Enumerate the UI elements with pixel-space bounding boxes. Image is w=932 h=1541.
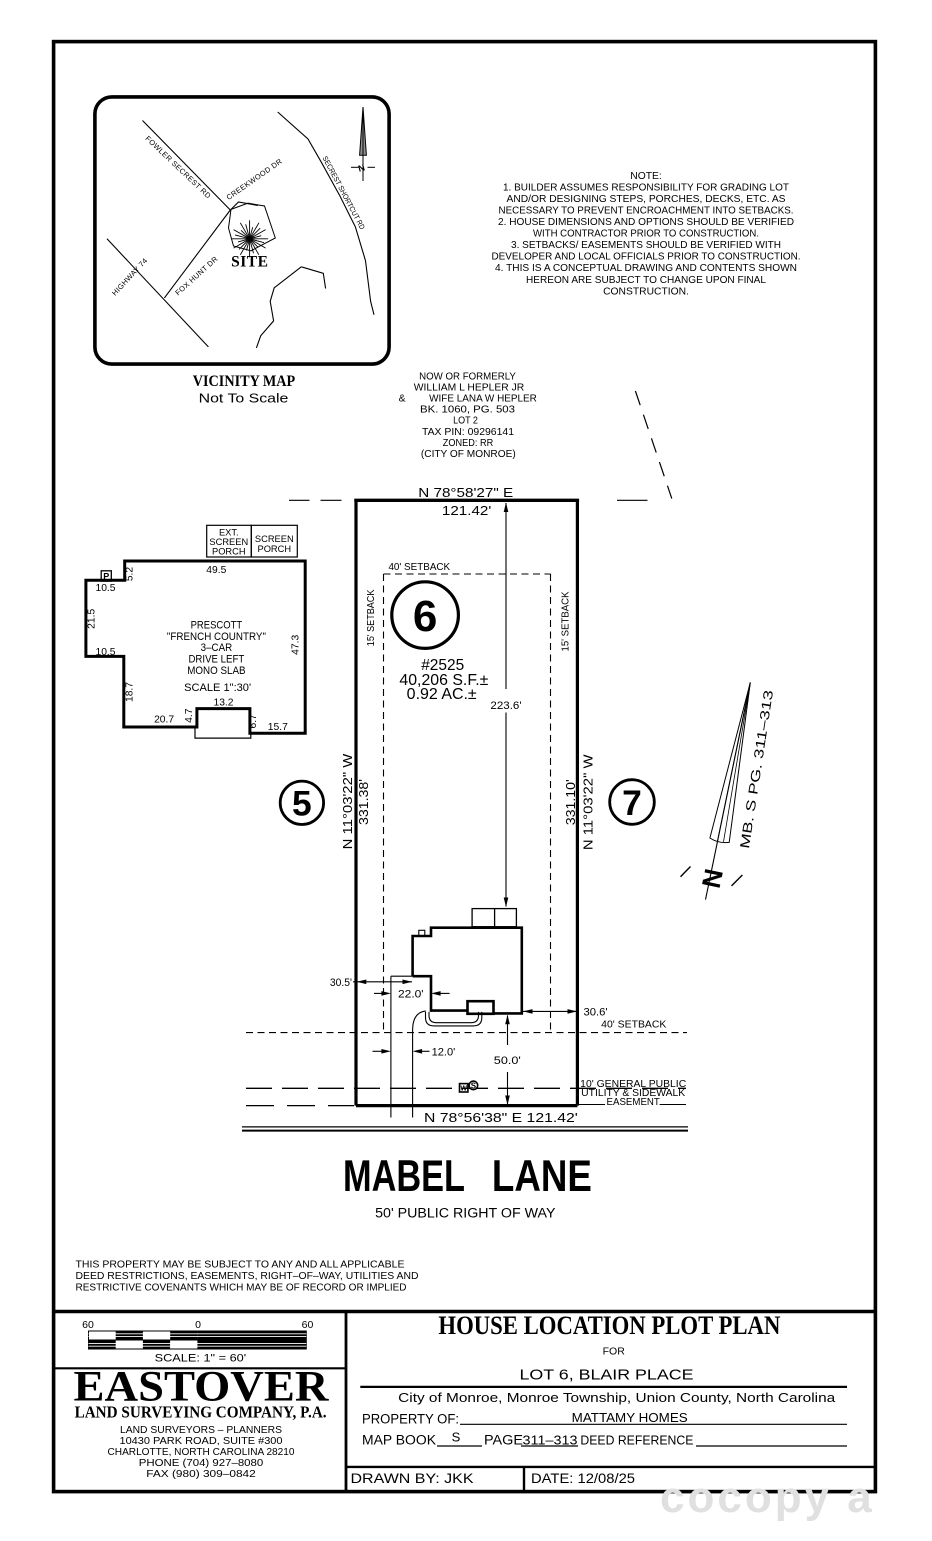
svg-text:311–313: 311–313 (523, 1433, 578, 1448)
svg-text:W: W (460, 1085, 467, 1092)
svg-text:S: S (471, 1082, 477, 1091)
svg-text:13.2: 13.2 (213, 697, 233, 708)
svg-text:30.5': 30.5' (330, 977, 352, 989)
svg-text:TAX PIN: 09296141: TAX PIN: 09296141 (422, 427, 514, 438)
svg-text:40' SETBACK: 40' SETBACK (601, 1020, 666, 1031)
svg-text:331.10': 331.10' (564, 779, 578, 825)
svg-text:SCREEN: SCREEN (209, 537, 248, 547)
svg-text:12.0': 12.0' (432, 1047, 456, 1059)
svg-text:10.5: 10.5 (95, 647, 115, 658)
svg-text:5: 5 (292, 784, 312, 824)
svg-text:N 11°03'22" W: N 11°03'22" W (341, 753, 355, 849)
svg-text:3. SETBACKS/ EASEMENTS SHOULD: 3. SETBACKS/ EASEMENTS SHOULD BE VERIFIE… (511, 240, 781, 251)
svg-text:FAX (980) 309–0842: FAX (980) 309–0842 (146, 1469, 256, 1480)
svg-text:15' SETBACK: 15' SETBACK (561, 591, 572, 651)
svg-text:BK. 1060, PG. 503: BK. 1060, PG. 503 (420, 405, 515, 416)
svg-text:EASEMENT: EASEMENT (607, 1097, 660, 1108)
svg-text:4.7: 4.7 (184, 708, 195, 723)
svg-text:(CITY OF MONROE): (CITY OF MONROE) (421, 449, 516, 460)
svg-text:PORCH: PORCH (212, 547, 246, 557)
svg-text:N 78°58'27" E: N 78°58'27" E (418, 485, 513, 500)
svg-text:MATTAMY HOMES: MATTAMY HOMES (572, 1410, 688, 1425)
svg-text:EXT.: EXT. (219, 527, 239, 537)
svg-text:331.38': 331.38' (357, 779, 371, 825)
svg-text:"FRENCH COUNTRY": "FRENCH COUNTRY" (167, 631, 266, 643)
svg-text:PROPERTY OF:: PROPERTY OF: (362, 1412, 459, 1427)
svg-text:60: 60 (82, 1319, 94, 1331)
svg-text:40' SETBACK: 40' SETBACK (388, 562, 450, 573)
svg-text:22.0': 22.0' (398, 988, 424, 1000)
svg-text:0.92 AC.±: 0.92 AC.± (407, 686, 477, 703)
svg-text:LAND SURVEYING COMPANY, P.A.: LAND SURVEYING COMPANY, P.A. (75, 1403, 327, 1422)
svg-text:10.5: 10.5 (95, 583, 115, 594)
svg-text:AND/OR DESIGNING STEPS, PORCHE: AND/OR DESIGNING STEPS, PORCHES, DECKS, … (507, 194, 786, 205)
svg-text:MAP BOOK: MAP BOOK (362, 1433, 436, 1448)
svg-text:WILLIAM L HEPLER JR: WILLIAM L HEPLER JR (414, 382, 525, 393)
svg-text:SCALE 1":30': SCALE 1":30' (184, 682, 251, 694)
svg-text:DEED REFERENCE: DEED REFERENCE (580, 1433, 693, 1448)
svg-text:THIS PROPERTY MAY BE SUBJECT T: THIS PROPERTY MAY BE SUBJECT TO ANY AND … (76, 1259, 405, 1270)
svg-text:N 78°56'38" E 121.42': N 78°56'38" E 121.42' (424, 1110, 578, 1125)
svg-text:CONSTRUCTION.: CONSTRUCTION. (603, 286, 689, 297)
svg-text:cocopy a: cocopy a (660, 1473, 875, 1522)
svg-text:SCREEN: SCREEN (255, 534, 294, 544)
svg-text:1. BUILDER ASSUMES RESPONSIBIL: 1. BUILDER ASSUMES RESPONSIBILITY FOR GR… (503, 182, 790, 193)
svg-text:PHONE (704) 927–8080: PHONE (704) 927–8080 (139, 1458, 264, 1469)
svg-text:7: 7 (622, 783, 642, 823)
svg-text:LAND SURVEYORS – PLANNERS: LAND SURVEYORS – PLANNERS (120, 1425, 282, 1436)
svg-text:NECESSARY TO PREVENT ENCROACHM: NECESSARY TO PREVENT ENCROACHMENT INTO S… (499, 205, 794, 216)
svg-text:47.3: 47.3 (290, 635, 301, 655)
svg-text:WIFE LANA W HEPLER: WIFE LANA W HEPLER (429, 394, 537, 405)
svg-text:N 11°03'22" W: N 11°03'22" W (581, 754, 595, 850)
svg-text:WITH CONTRACTOR PRIOR TO CONST: WITH CONTRACTOR PRIOR TO CONSTRUCTION. (533, 229, 759, 240)
svg-text:HOUSE LOCATION PLOT PLAN: HOUSE LOCATION PLOT PLAN (438, 1311, 780, 1340)
svg-text:50.0': 50.0' (494, 1055, 521, 1067)
svg-text:FOR: FOR (603, 1346, 626, 1358)
svg-text:5.2: 5.2 (125, 567, 136, 582)
svg-text:MABEL: MABEL (343, 1152, 465, 1201)
svg-text:49.5: 49.5 (206, 565, 226, 576)
svg-text:CHARLOTTE, NORTH CAROLINA 2821: CHARLOTTE, NORTH CAROLINA 28210 (108, 1447, 295, 1458)
svg-text:2. HOUSE DIMENSIONS AND OPTION: 2. HOUSE DIMENSIONS AND OPTIONS SHOULD B… (498, 217, 794, 228)
svg-text:ZONED: RR: ZONED: RR (443, 438, 493, 449)
svg-text:LOT 6, BLAIR PLACE: LOT 6, BLAIR PLACE (520, 1367, 694, 1384)
svg-text:15' SETBACK: 15' SETBACK (366, 589, 377, 646)
svg-text:15.7: 15.7 (268, 722, 288, 733)
svg-text:21.5: 21.5 (86, 609, 97, 629)
svg-text:PAGE: PAGE (484, 1433, 523, 1448)
svg-text:121.42': 121.42' (442, 503, 491, 518)
svg-text:MONO SLAB: MONO SLAB (187, 665, 245, 677)
svg-text:HEREON ARE SUBJECT TO CHANGE U: HEREON ARE SUBJECT TO CHANGE UPON FINAL (526, 275, 766, 286)
svg-text:6.7: 6.7 (248, 714, 259, 729)
svg-text:LANE: LANE (492, 1152, 592, 1201)
svg-text:City of Monroe, Monroe Townshi: City of Monroe, Monroe Township, Union C… (398, 1390, 836, 1405)
svg-text:20.7: 20.7 (154, 715, 174, 726)
svg-text:RESTRICTIVE COVENANTS WHICH MA: RESTRICTIVE COVENANTS WHICH MAY BE OF RE… (76, 1283, 407, 1294)
svg-text:PRESCOTT: PRESCOTT (191, 620, 243, 632)
svg-text:DEVELOPER AND LOCAL OFFICIALS: DEVELOPER AND LOCAL OFFICIALS PRIOR TO C… (492, 252, 801, 263)
svg-text:DRAWN BY: JKK: DRAWN BY: JKK (351, 1470, 475, 1486)
svg-text:0: 0 (195, 1319, 201, 1331)
svg-text:VICINITY MAP: VICINITY MAP (193, 373, 296, 390)
svg-text:Not To Scale: Not To Scale (199, 391, 289, 406)
svg-text:3–CAR: 3–CAR (201, 642, 233, 654)
svg-text:&: & (399, 394, 406, 405)
svg-text:S: S (452, 1430, 461, 1445)
svg-text:P: P (103, 572, 109, 582)
svg-text:LOT 2: LOT 2 (453, 416, 478, 427)
svg-text:50' PUBLIC RIGHT OF WAY: 50' PUBLIC RIGHT OF WAY (375, 1206, 556, 1222)
svg-text:PORCH: PORCH (258, 544, 292, 554)
svg-text:30.6': 30.6' (584, 1006, 608, 1018)
svg-text:SITE: SITE (231, 254, 268, 271)
svg-text:18.7: 18.7 (125, 682, 136, 702)
svg-text:223.6': 223.6' (490, 700, 521, 712)
svg-text:4. THIS IS A CONCEPTUAL DRAWIN: 4. THIS IS A CONCEPTUAL DRAWING AND CONT… (495, 263, 797, 274)
svg-text:DEED RESTRICTIONS, EASEMENTS,: DEED RESTRICTIONS, EASEMENTS, RIGHT–OF–W… (76, 1271, 419, 1282)
svg-text:60: 60 (302, 1319, 314, 1331)
svg-text:DRIVE LEFT: DRIVE LEFT (188, 654, 244, 666)
svg-text:DATE: 12/08/25: DATE: 12/08/25 (531, 1470, 635, 1486)
svg-text:NOW OR FORMERLY: NOW OR FORMERLY (419, 371, 516, 382)
svg-text:NOTE:: NOTE: (630, 171, 661, 182)
svg-text:10430 PARK ROAD, SUITE #300: 10430 PARK ROAD, SUITE #300 (120, 1436, 283, 1447)
svg-text:6: 6 (413, 592, 437, 641)
